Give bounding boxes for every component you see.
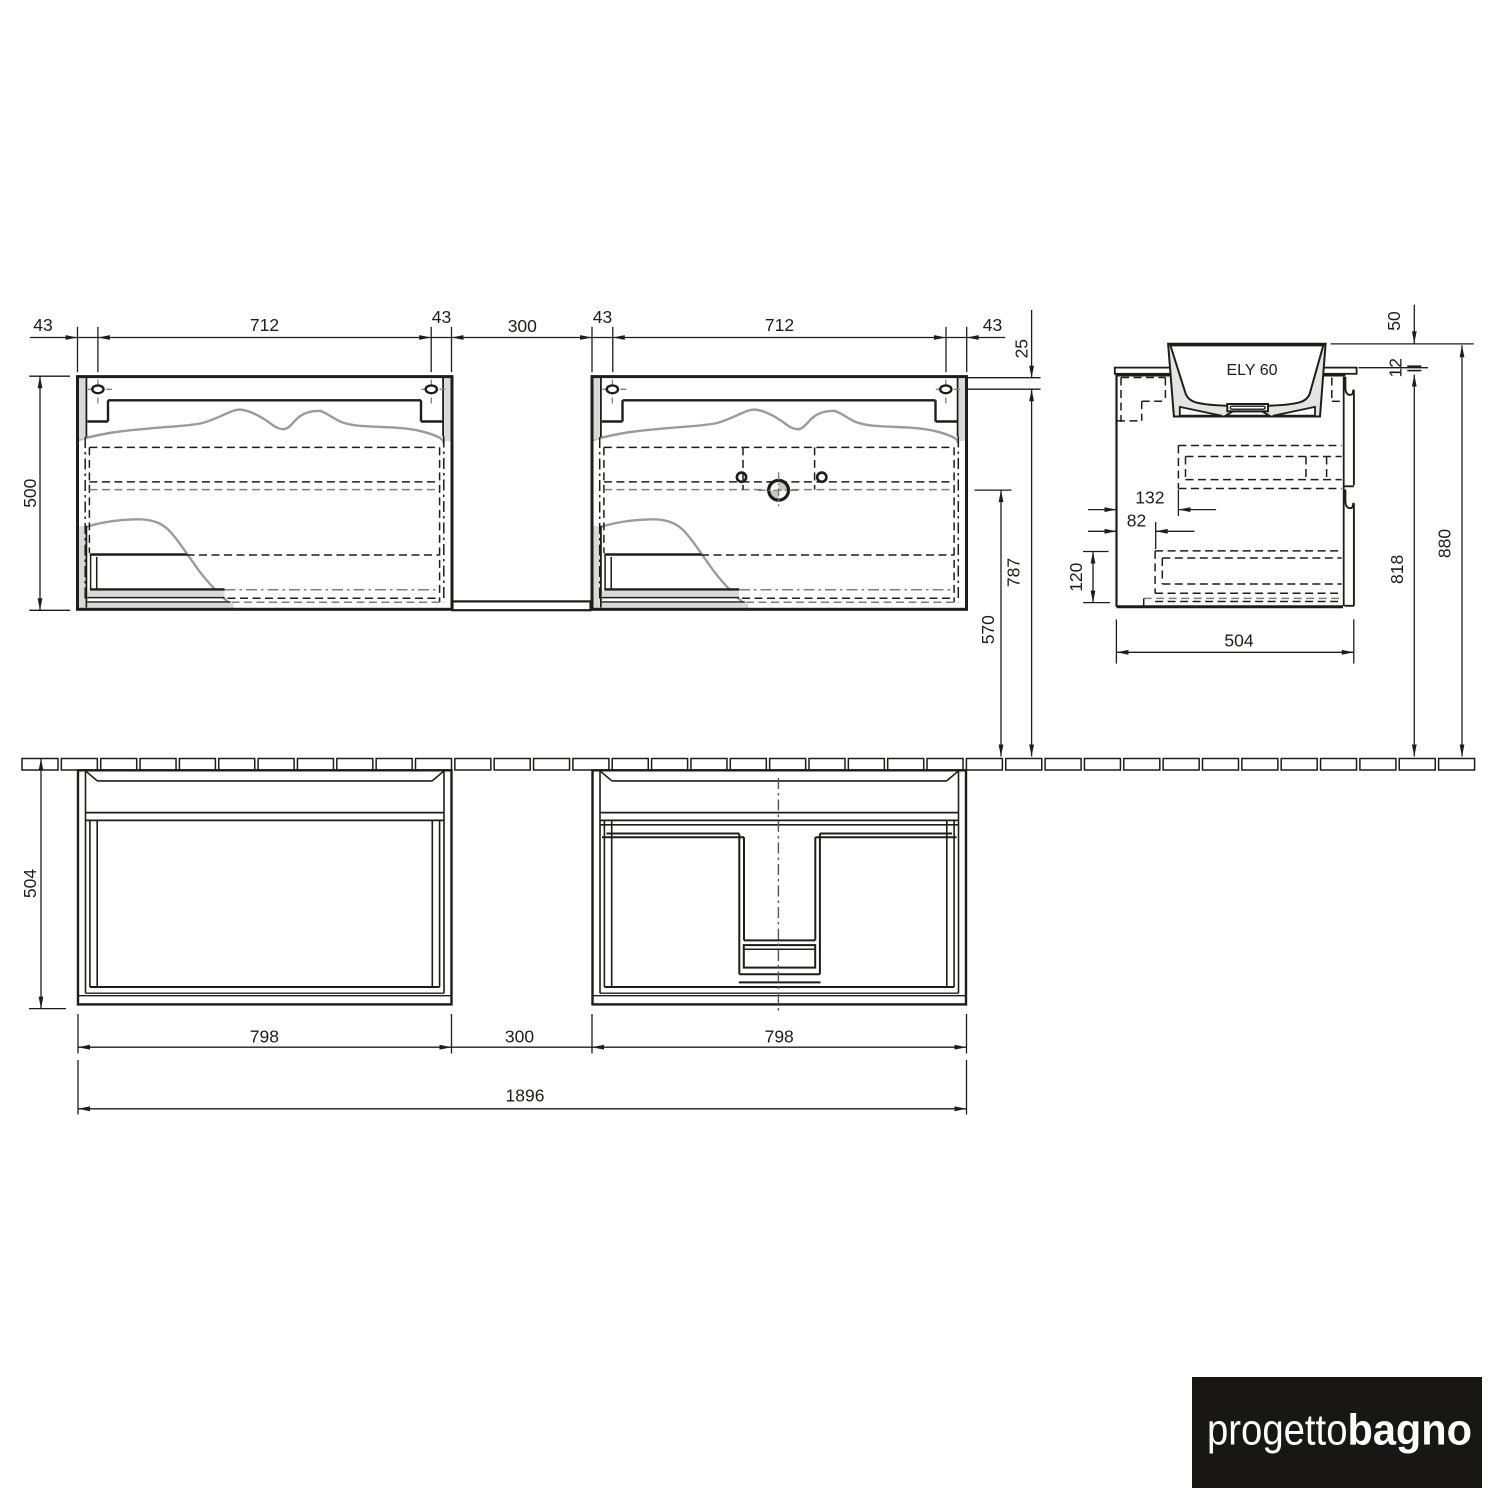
svg-text:712: 712 [765,315,794,335]
svg-text:504: 504 [20,869,40,898]
svg-text:ELY 60: ELY 60 [1226,362,1277,379]
svg-text:43: 43 [33,315,52,335]
svg-text:880: 880 [1435,529,1455,558]
svg-text:43: 43 [983,315,1002,335]
svg-text:818: 818 [1387,555,1407,584]
svg-text:712: 712 [250,315,279,335]
svg-text:12: 12 [1386,358,1406,377]
svg-text:50: 50 [1384,311,1404,331]
svg-text:1896: 1896 [506,1086,545,1106]
svg-text:bagno: bagno [1348,1406,1473,1455]
svg-text:787: 787 [1004,558,1024,587]
svg-text:43: 43 [593,307,612,327]
svg-text:25: 25 [1012,339,1032,358]
svg-text:798: 798 [250,1026,279,1046]
svg-text:798: 798 [765,1026,794,1046]
svg-text:82: 82 [1127,510,1146,530]
svg-text:132: 132 [1135,487,1164,507]
svg-text:504: 504 [1224,631,1253,651]
svg-text:120: 120 [1066,562,1086,591]
svg-text:300: 300 [508,316,537,336]
svg-text:500: 500 [20,478,40,507]
svg-text:43: 43 [432,307,451,327]
svg-text:570: 570 [978,615,998,644]
svg-text:progetto: progetto [1207,1406,1348,1455]
svg-text:300: 300 [505,1026,534,1046]
